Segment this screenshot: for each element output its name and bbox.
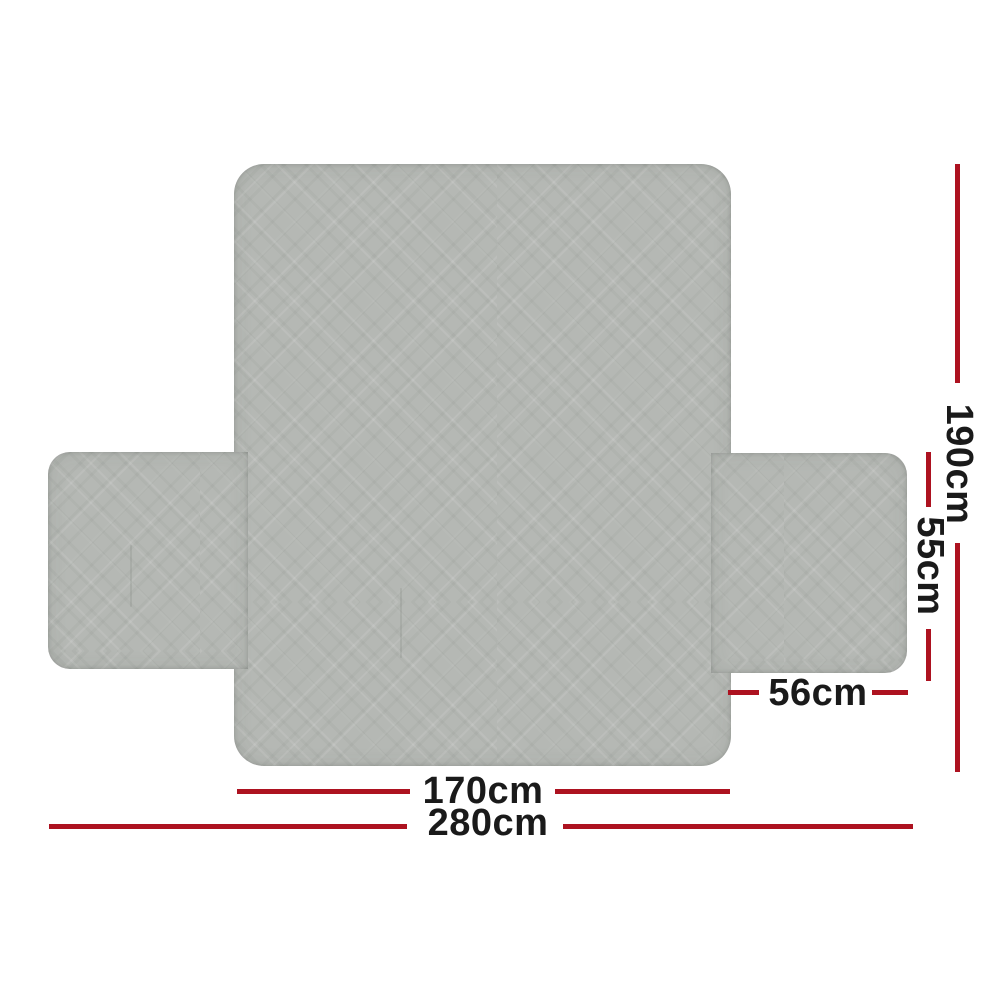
fabric-crease	[400, 588, 402, 658]
dimension-line-55cm-lower	[926, 629, 931, 681]
product-dimension-diagram: 190cm 55cm 56cm 170cm 280cm	[0, 0, 1000, 1000]
dimension-label-56cm: 56cm	[768, 674, 867, 712]
dimension-label-190cm: 190cm	[940, 404, 978, 525]
dimension-line-190cm-upper	[955, 164, 960, 383]
dimension-label-55cm: 55cm	[911, 516, 949, 615]
dimension-line-55cm-upper	[926, 452, 931, 507]
dimension-line-56cm-left	[728, 690, 759, 695]
sofa-cover-right-arm-flap	[711, 453, 907, 673]
sofa-cover-left-arm-flap	[48, 452, 248, 669]
dimension-line-280cm-right	[563, 824, 913, 829]
dimension-line-280cm-left	[49, 824, 407, 829]
sofa-cover-main-panel	[234, 164, 731, 766]
dimension-line-170cm-right	[555, 789, 730, 794]
dimension-label-280cm: 280cm	[428, 804, 549, 842]
dimension-line-170cm-left	[237, 789, 410, 794]
fabric-crease	[130, 545, 132, 607]
dimension-line-56cm-right	[872, 690, 908, 695]
dimension-line-190cm-lower	[955, 543, 960, 772]
